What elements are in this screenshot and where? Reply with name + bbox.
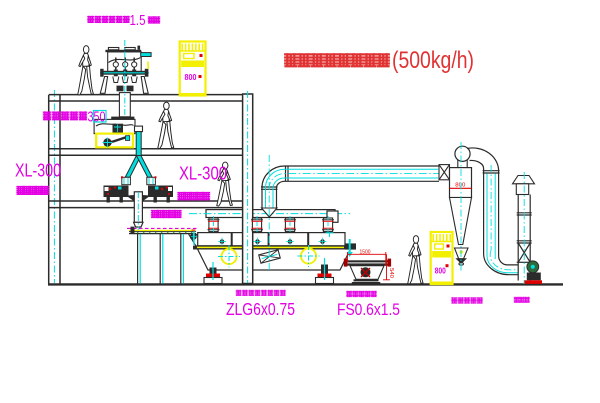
svg-text:XL-300: XL-300 [15, 160, 61, 181]
svg-text:800: 800 [185, 72, 197, 82]
svg-text:XL-300: XL-300 [179, 163, 227, 184]
svg-text:(500kg/h): (500kg/h) [392, 47, 474, 74]
svg-text:1.5: 1.5 [130, 13, 146, 29]
svg-text:FS0.6x1.5: FS0.6x1.5 [337, 300, 400, 319]
svg-text:800: 800 [435, 266, 446, 276]
svg-text:ZLG6x0.75: ZLG6x0.75 [226, 299, 295, 319]
svg-text:800: 800 [455, 182, 465, 188]
svg-text:350: 350 [88, 110, 106, 126]
svg-text:1500: 1500 [360, 249, 371, 255]
svg-text:540: 540 [388, 268, 394, 278]
